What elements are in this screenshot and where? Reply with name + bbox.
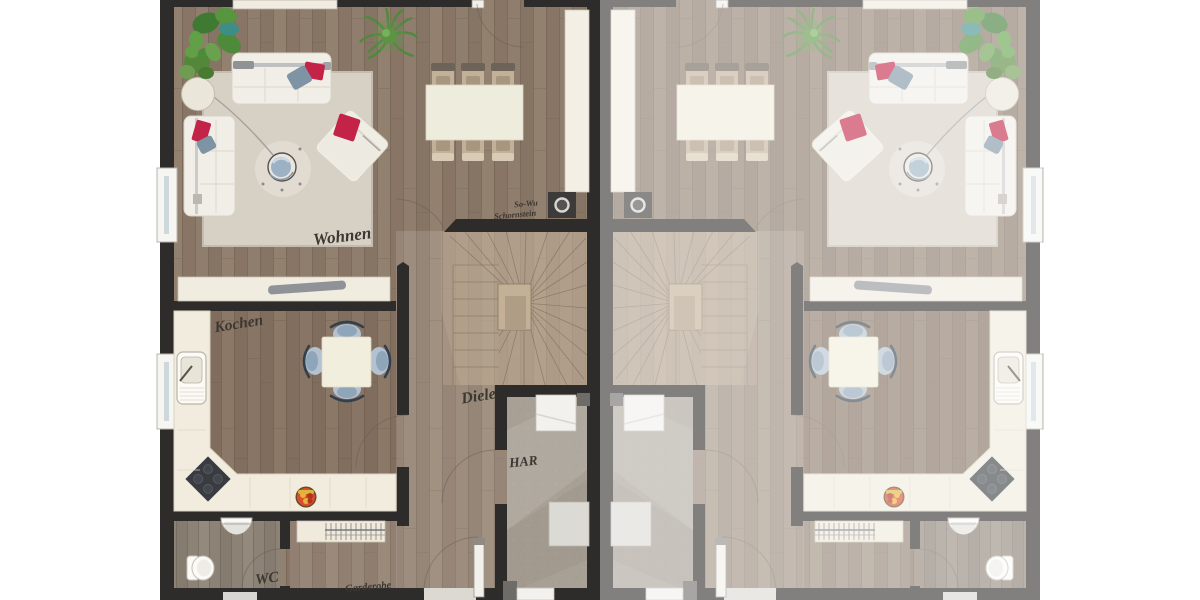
svg-text:HAR: HAR <box>507 453 538 471</box>
svg-text:WC: WC <box>254 569 280 588</box>
